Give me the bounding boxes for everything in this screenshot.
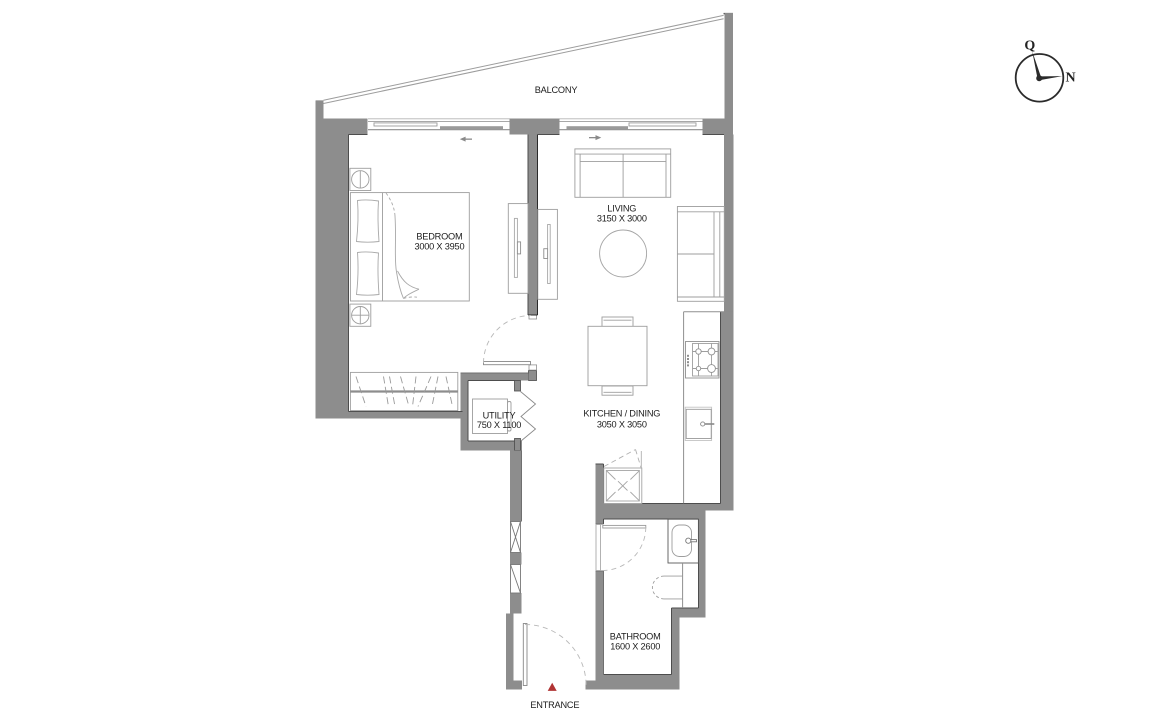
svg-text:1600 X 2600: 1600 X 2600 [610,642,660,652]
svg-text:3050 X 3050: 3050 X 3050 [597,419,647,429]
svg-text:Q: Q [1024,38,1035,53]
svg-text:BALCONY: BALCONY [535,85,578,95]
svg-text:3150 X 3000: 3150 X 3000 [597,214,647,224]
svg-text:KITCHEN / DINING: KITCHEN / DINING [583,409,660,419]
svg-text:BATHROOM: BATHROOM [610,632,661,642]
svg-text:ENTRANCE: ENTRANCE [530,700,579,710]
svg-text:LIVING: LIVING [607,204,636,214]
svg-text:3000 X 3950: 3000 X 3950 [414,242,464,252]
svg-text:N: N [1065,70,1075,85]
svg-text:750 X 1100: 750 X 1100 [477,420,521,430]
svg-text:BEDROOM: BEDROOM [416,232,462,242]
